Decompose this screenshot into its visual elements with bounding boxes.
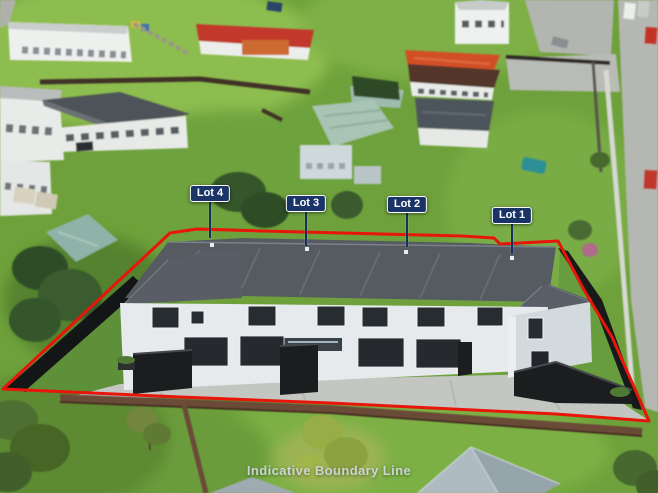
brown-roof-house [408,64,500,100]
aerial-photo: Lot 4 Lot 3 Lot 2 Lot 1 Indicative Bound… [0,0,658,493]
lot-1-label: Lot 1 [492,207,532,224]
lot-1-pointer [511,222,513,254]
hedge [352,76,400,100]
long-white-building [8,22,132,62]
white-two-story-house [455,0,509,44]
lot-3-label: Lot 3 [286,195,326,212]
aerial-scene [0,0,658,493]
gray-roof-house [415,98,494,148]
lot-4-pointer [209,200,211,238]
boundary-caption: Indicative Boundary Line [0,463,658,478]
lot-2-pointer [406,211,408,247]
lot-2-label: Lot 2 [387,196,427,213]
lot-4-label: Lot 4 [190,185,230,202]
lot-3-pointer [305,210,307,246]
